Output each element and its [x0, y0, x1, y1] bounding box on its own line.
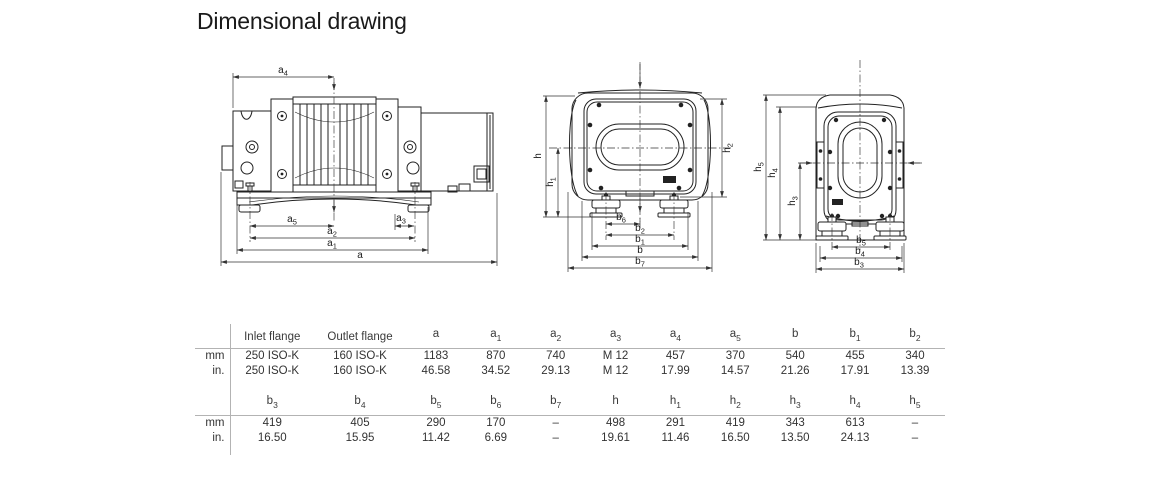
dim-label-h5: h5: [753, 162, 766, 172]
table-cell: 13.50: [765, 431, 825, 446]
dim-label-a: a: [357, 250, 363, 261]
table-cell: 160 ISO-K: [314, 364, 406, 379]
table-cell: 740: [526, 349, 586, 365]
table-cell: 290: [406, 416, 466, 432]
table-cell: 540: [765, 349, 825, 365]
table-cell: 170: [466, 416, 526, 432]
table-header-row-2: b3 b4 b5 b6 b7 h h1 h2 h3 h4 h5: [195, 391, 945, 416]
table-cell: –: [526, 416, 586, 432]
col-header-b5: b5: [406, 391, 466, 416]
table-cell: 291: [646, 416, 706, 432]
dim-label-b7: b7: [635, 256, 645, 269]
col-header-inlet-flange: Inlet flange: [230, 324, 314, 349]
spacer-row: [195, 379, 945, 391]
dim-label-a4: a4: [278, 65, 288, 78]
pump-rear-view-drawing: h5 h4 h3 b5 b4 b3: [753, 60, 922, 273]
table-cell: 15.95: [314, 431, 406, 446]
table-cell: 498: [586, 416, 646, 432]
table-cell: –: [885, 431, 945, 446]
col-header-a4: a4: [646, 324, 706, 349]
col-header-a1: a1: [466, 324, 526, 349]
col-header-h4: h4: [825, 391, 885, 416]
col-header-h1: h1: [646, 391, 706, 416]
col-header-b6: b6: [466, 391, 526, 416]
col-header-b: b: [765, 324, 825, 349]
logo-mark: [832, 199, 843, 205]
col-header-a: a: [406, 324, 466, 349]
right-foot: [408, 205, 429, 212]
padding-row: [195, 446, 945, 455]
dim-label-a3: a3: [396, 213, 406, 226]
col-header-a5: a5: [705, 324, 765, 349]
table-cell: 16.50: [230, 431, 314, 446]
table-row-in-1: in. 250 ISO-K 160 ISO-K 46.58 34.52 29.1…: [195, 364, 945, 379]
dim-label-a2: a2: [327, 226, 337, 239]
table-row-mm-2: mm 419 405 290 170 – 498 291 419 343 613…: [195, 416, 945, 432]
table-row-mm-1: mm 250 ISO-K 160 ISO-K 1183 870 740 M 12…: [195, 349, 945, 365]
table-cell: 24.13: [825, 431, 885, 446]
table-cell: M 12: [586, 349, 646, 365]
dim-label-b3: b3: [854, 257, 864, 270]
row-label-in: in.: [195, 431, 230, 446]
logo-mark: [663, 176, 676, 183]
dim-label-h4: h4: [767, 168, 780, 178]
pump-side-view-drawing: a4 a5 a3 a2 a1 a: [221, 65, 497, 266]
datasheet-page: Dimensional drawing: [0, 0, 1160, 480]
corner-cell: [195, 391, 230, 416]
col-header-h5: h5: [885, 391, 945, 416]
left-foot: [239, 205, 260, 212]
table-cell: 19.61: [586, 431, 646, 446]
dimension-table: Inlet flange Outlet flange a a1 a2 a3 a4…: [195, 324, 945, 455]
dim-label-h2: h2: [722, 143, 735, 153]
corner-cell: [195, 324, 230, 349]
table-row-in-2: in. 16.50 15.95 11.42 6.69 – 19.61 11.46…: [195, 431, 945, 446]
dim-label-a1: a1: [327, 238, 337, 251]
col-header-b3: b3: [230, 391, 314, 416]
col-header-h2: h2: [705, 391, 765, 416]
table-cell: 29.13: [526, 364, 586, 379]
col-header-b7: b7: [526, 391, 586, 416]
table-cell: 6.69: [466, 431, 526, 446]
ribbed-housing-block: [293, 97, 376, 192]
table-cell: 34.52: [466, 364, 526, 379]
table-cell: –: [885, 416, 945, 432]
row-label-mm: mm: [195, 349, 230, 365]
dim-label-h1: h1: [545, 177, 558, 187]
table-cell: –: [526, 431, 586, 446]
table-cell: 613: [825, 416, 885, 432]
table-cell: 17.99: [646, 364, 706, 379]
table-cell: 21.26: [765, 364, 825, 379]
table-header-row-1: Inlet flange Outlet flange a a1 a2 a3 a4…: [195, 324, 945, 349]
table-cell: 250 ISO-K: [230, 364, 314, 379]
table-cell: 13.39: [885, 364, 945, 379]
table-cell: 343: [765, 416, 825, 432]
col-header-outlet-flange: Outlet flange: [314, 324, 406, 349]
side-port-tab: [222, 146, 233, 170]
table-cell: 370: [705, 349, 765, 365]
table-cell: 405: [314, 416, 406, 432]
pump-front-view-drawing: h h1 h2 b6 b2 b1 b b7: [533, 62, 735, 272]
col-header-b2: b2: [885, 324, 945, 349]
col-header-h3: h3: [765, 391, 825, 416]
table-cell: M 12: [586, 364, 646, 379]
row-label-mm: mm: [195, 416, 230, 432]
dim-label-b: b: [637, 245, 643, 256]
table-cell: 419: [705, 416, 765, 432]
table-cell: 46.58: [406, 364, 466, 379]
dim-label-h3: h3: [787, 196, 800, 206]
left-housing: [233, 111, 271, 191]
table-cell: 11.42: [406, 431, 466, 446]
table-cell: 870: [466, 349, 526, 365]
col-header-b1: b1: [825, 324, 885, 349]
row-label-in: in.: [195, 364, 230, 379]
table-cell: 1183: [406, 349, 466, 365]
col-header-a2: a2: [526, 324, 586, 349]
dim-label-h: h: [533, 153, 544, 159]
col-header-a3: a3: [586, 324, 646, 349]
table-cell: 16.50: [705, 431, 765, 446]
table-cell: 17.91: [825, 364, 885, 379]
table-cell: 457: [646, 349, 706, 365]
table-cell: 419: [230, 416, 314, 432]
table-cell: 11.46: [646, 431, 706, 446]
dim-label-a5: a5: [287, 214, 297, 227]
table-cell: 160 ISO-K: [314, 349, 406, 365]
table-cell: 250 ISO-K: [230, 349, 314, 365]
col-header-b4: b4: [314, 391, 406, 416]
col-header-h: h: [586, 391, 646, 416]
table-cell: 455: [825, 349, 885, 365]
table-cell: 340: [885, 349, 945, 365]
table-cell: 14.57: [705, 364, 765, 379]
dim-label-b6: b6: [616, 212, 626, 225]
